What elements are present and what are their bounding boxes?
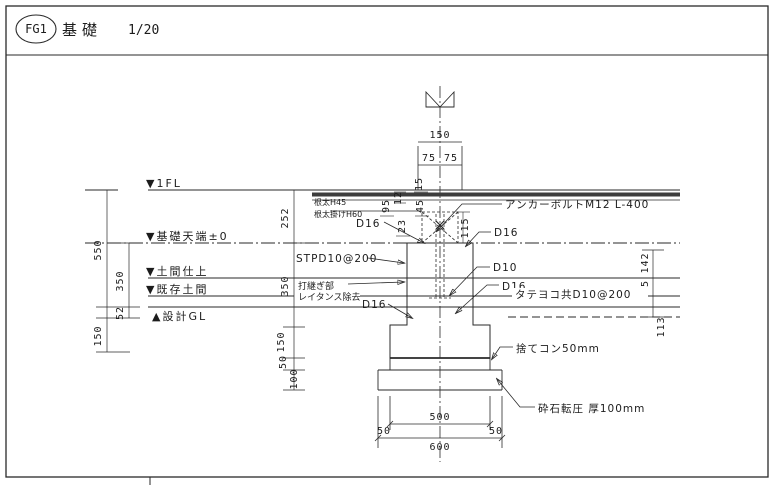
dim-top-75-right: 75 bbox=[444, 153, 458, 164]
label-lean-concrete: 捨てコン50mm bbox=[516, 342, 600, 355]
leader-d16-mid-right bbox=[456, 285, 499, 313]
drawing-page: FG1 基礎 1/20 ▼1FL ▼基礎天端±0 ▼土間仕上 ▼既存土間 ▲設計… bbox=[0, 0, 776, 485]
label-d16-top-left: D16 bbox=[356, 218, 380, 230]
dim-left-52: 52 bbox=[115, 306, 126, 320]
foundation-detail-drawing: FG1 基礎 1/20 ▼1FL ▼基礎天端±0 ▼土間仕上 ▼既存土間 ▲設計… bbox=[0, 0, 776, 485]
dim-mid-50: 50 bbox=[278, 355, 289, 369]
leader-d10 bbox=[450, 267, 490, 295]
dim-left-350: 350 bbox=[115, 270, 126, 291]
dim-bottom-50-left: 50 bbox=[377, 426, 391, 437]
dim-bottom-500: 500 bbox=[429, 412, 450, 423]
dim-floor-23: 23 bbox=[397, 219, 408, 233]
label-crushed-stone: 砕石転圧 厚100mm bbox=[538, 403, 645, 415]
dim-right-142: 142 bbox=[640, 252, 651, 273]
concrete-hatch bbox=[390, 243, 490, 358]
level-labels: ▼1FL ▼基礎天端±0 ▼土間仕上 ▼既存土間 ▲設計GL bbox=[146, 177, 229, 323]
leader-crushed-stone bbox=[497, 379, 535, 407]
label-d16-top-right: D16 bbox=[494, 227, 518, 239]
label-joist-hanger: 根太掛けH60 bbox=[314, 209, 362, 219]
label-hoop: STPD10@200 bbox=[296, 253, 377, 265]
dim-right-113: 113 bbox=[656, 316, 667, 337]
label-slab-finish: ▼土間仕上 bbox=[146, 265, 208, 278]
page-border bbox=[6, 6, 768, 485]
dim-mid-350: 350 bbox=[280, 275, 291, 296]
leader-d16-mid-left bbox=[388, 304, 412, 318]
title-block: FG1 基礎 1/20 bbox=[16, 15, 159, 43]
drawing-mark: FG1 bbox=[25, 22, 47, 36]
label-d10: D10 bbox=[493, 262, 517, 274]
dim-floor-45: 45 bbox=[415, 199, 426, 213]
dim-mid-252: 252 bbox=[280, 207, 291, 228]
dim-mid-150: 150 bbox=[276, 331, 287, 352]
label-1fl: ▼1FL bbox=[146, 177, 182, 190]
foundation-outline bbox=[390, 243, 490, 358]
dim-top-150: 150 bbox=[429, 130, 450, 141]
drawing-title: 基礎 bbox=[62, 21, 102, 39]
label-anchor-bolt: アンカーボルトM12 L-400 bbox=[505, 199, 649, 211]
label-d16-mid-left: D16 bbox=[362, 299, 386, 311]
dim-floor-95: 95 bbox=[381, 199, 392, 213]
dim-bottom-50-right: 50 bbox=[489, 426, 503, 437]
label-slab-rebar: タテヨコ共D10@200 bbox=[515, 289, 632, 301]
drawing-scale: 1/20 bbox=[128, 23, 159, 38]
dim-mid-100: 100 bbox=[289, 368, 300, 389]
label-joint-2: レイタンス除去 bbox=[298, 291, 360, 303]
dim-bottom-600: 600 bbox=[429, 442, 450, 453]
dim-left-550: 550 bbox=[93, 239, 104, 260]
dim-sill-115: 115 bbox=[460, 217, 471, 238]
label-foundation-top: ▼基礎天端±0 bbox=[146, 230, 229, 243]
dim-top-15: 15 bbox=[414, 177, 425, 191]
dim-floor-12: 12 bbox=[393, 191, 404, 205]
label-joint-1: 打継ぎ部 bbox=[298, 280, 334, 292]
floor-board bbox=[312, 193, 680, 197]
dim-left-150: 150 bbox=[93, 325, 104, 346]
centerline-symbol bbox=[426, 92, 440, 107]
label-joist: 根太H45 bbox=[314, 197, 346, 207]
leader-lean-concrete bbox=[492, 347, 513, 359]
label-existing-slab: ▼既存土間 bbox=[146, 282, 208, 296]
label-design-gl: ▲設計GL bbox=[152, 309, 207, 323]
dim-top-75-left: 75 bbox=[422, 153, 436, 164]
leader-joint bbox=[348, 282, 404, 284]
